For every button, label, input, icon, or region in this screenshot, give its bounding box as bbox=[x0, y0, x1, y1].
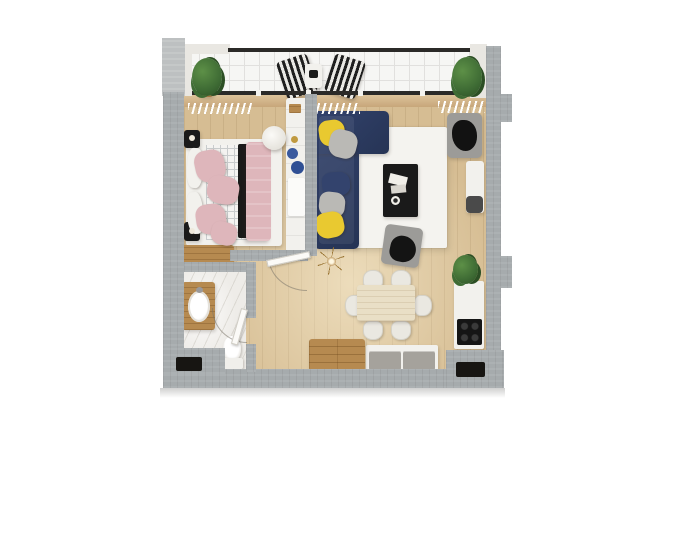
decor-bowl bbox=[391, 196, 400, 205]
wooden-sideboard-chest bbox=[309, 339, 365, 371]
wall-bathroom-right-lower bbox=[246, 344, 256, 372]
radiator-hatch-bedroom bbox=[188, 103, 252, 114]
pink-duvet bbox=[246, 142, 271, 241]
desk-chair bbox=[466, 196, 483, 213]
cooktop-4-burners bbox=[457, 319, 482, 345]
radiator-hatch-living bbox=[312, 103, 360, 114]
wall-bathroom-top bbox=[184, 262, 248, 272]
round-stool bbox=[262, 126, 286, 150]
wall-pier-mid-right bbox=[486, 256, 512, 288]
nightstand-lamp bbox=[189, 135, 195, 141]
wall-left bbox=[163, 92, 184, 388]
window-mullion bbox=[420, 90, 425, 96]
ceiling-lamp bbox=[317, 247, 345, 275]
wooden-dining-table bbox=[357, 285, 415, 321]
pillar-top-left bbox=[162, 38, 185, 96]
dining-chair bbox=[391, 321, 411, 340]
oval-sink bbox=[188, 291, 210, 322]
nightstand-lamp bbox=[189, 228, 195, 234]
entrance-niche-left bbox=[176, 357, 202, 371]
balcony-parapet-left bbox=[184, 44, 192, 96]
potted-plant-living bbox=[453, 255, 478, 284]
gray-cabinet-door bbox=[369, 351, 401, 370]
gray-cabinet-door bbox=[403, 351, 435, 370]
desk-wooden-box bbox=[289, 104, 301, 113]
window-mullion bbox=[358, 90, 363, 96]
window-mullion bbox=[256, 90, 261, 96]
potted-plant-balcony-right bbox=[452, 57, 482, 97]
partition-bedroom-living bbox=[305, 94, 317, 256]
window-frame-line bbox=[184, 91, 486, 95]
potted-plant-balcony-left bbox=[192, 58, 222, 96]
desk-blue-plate bbox=[291, 161, 304, 174]
magazine bbox=[391, 184, 407, 194]
ground-shadow bbox=[160, 388, 505, 398]
desk-gold-decor bbox=[291, 136, 298, 143]
dining-chair bbox=[414, 295, 432, 316]
balcony-table-tray bbox=[309, 70, 318, 78]
desk-blue-plate bbox=[287, 148, 298, 159]
black-throw-on-armchair bbox=[452, 120, 477, 151]
wall-pier-top-right bbox=[486, 94, 512, 122]
dining-chair bbox=[363, 321, 383, 340]
glass-railing bbox=[228, 48, 471, 52]
desk-white-board bbox=[288, 178, 305, 216]
sink-faucet bbox=[196, 287, 203, 293]
radiator-hatch-right bbox=[438, 101, 485, 113]
entrance-niche-right bbox=[456, 362, 485, 377]
floor-plan-canvas bbox=[0, 0, 700, 533]
